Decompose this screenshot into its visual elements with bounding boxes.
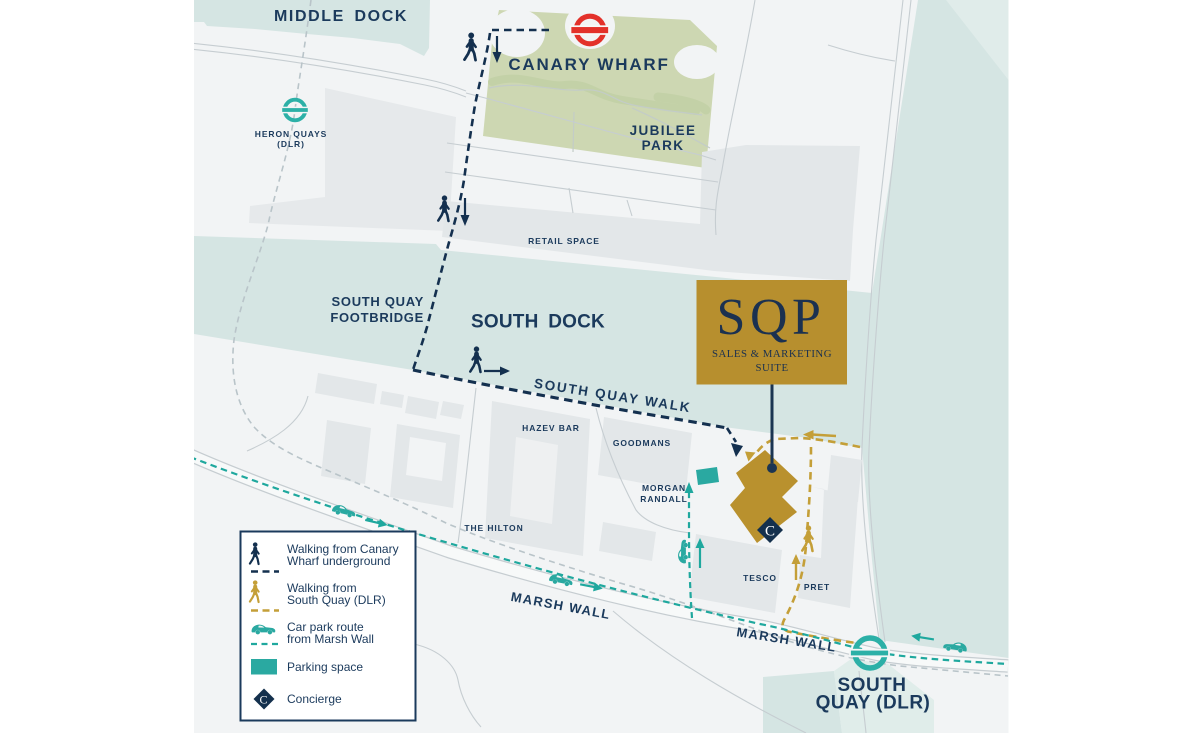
svg-text:MIDDLE DOCK: MIDDLE DOCK <box>274 8 408 25</box>
svg-text:Parking space: Parking space <box>287 660 363 674</box>
svg-text:(DLR): (DLR) <box>277 139 305 149</box>
svg-text:RANDALL: RANDALL <box>640 494 687 504</box>
svg-text:SOUTH DOCK: SOUTH DOCK <box>471 312 605 333</box>
svg-text:FOOTBRIDGE: FOOTBRIDGE <box>330 310 424 325</box>
svg-text:THE HILTON: THE HILTON <box>464 523 523 533</box>
svg-text:SALES & MARKETING: SALES & MARKETING <box>712 348 832 360</box>
svg-text:Wharf underground: Wharf underground <box>287 554 390 568</box>
svg-text:from Marsh Wall: from Marsh Wall <box>287 632 374 646</box>
svg-text:QUAY (DLR): QUAY (DLR) <box>816 693 931 714</box>
svg-text:MORGAN: MORGAN <box>642 483 686 493</box>
svg-text:Concierge: Concierge <box>287 692 342 706</box>
svg-text:GOODMANS: GOODMANS <box>613 438 671 448</box>
svg-text:HAZEV BAR: HAZEV BAR <box>522 423 580 433</box>
svg-text:JUBILEE: JUBILEE <box>630 123 697 138</box>
svg-text:RETAIL SPACE: RETAIL SPACE <box>528 236 600 246</box>
svg-text:CANARY WHARF: CANARY WHARF <box>508 55 669 74</box>
svg-text:C: C <box>765 524 775 540</box>
svg-text:South Quay (DLR): South Quay (DLR) <box>287 593 386 607</box>
svg-text:PARK: PARK <box>642 138 685 153</box>
svg-text:SUITE: SUITE <box>755 362 788 374</box>
svg-text:SQP: SQP <box>717 289 826 346</box>
svg-text:HERON QUAYS: HERON QUAYS <box>255 129 327 139</box>
svg-text:C: C <box>259 693 267 707</box>
svg-text:PRET: PRET <box>804 582 830 592</box>
svg-text:TESCO: TESCO <box>743 573 777 583</box>
svg-text:SOUTH QUAY: SOUTH QUAY <box>332 294 424 309</box>
